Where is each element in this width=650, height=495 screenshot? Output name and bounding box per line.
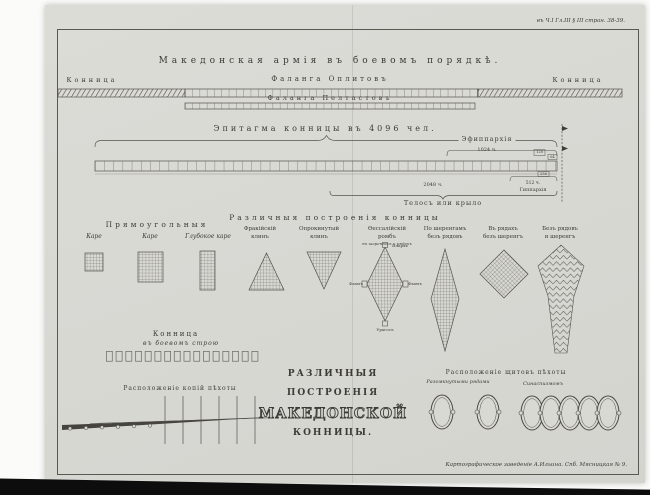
kare-small-grid [85,253,103,271]
kare-large-grid [138,252,163,282]
shield-open-1 [429,395,455,429]
count-256: 256 [540,173,547,177]
thessalian-rhombus [367,247,403,321]
main-title-line1: РАЗЛИЧНЫЯ [288,370,379,379]
hoplite-phalanx-label: Фаланга Оплитовъ [271,76,388,83]
ranks-only-label-1: По шеренгамъ [424,227,467,233]
spears-title: Расположеніе копій пѣхоты [123,386,236,392]
tall-rhombus-ranks-only [431,249,459,351]
telos-count: 2048 ч. [423,183,442,188]
kare2-label: Каре [142,234,158,240]
cavalry-right-label: Конница [553,77,604,84]
count-64: 64 [550,156,554,160]
publisher-imprint: Картографическое заведеніе А.Ильина. Спб… [446,463,628,469]
main-title-line4: КОННИЦЫ. [293,429,373,438]
shields-open-label: Разомкнутыми рядами [426,380,489,385]
battle-line-title-1: Конница [153,331,199,338]
flag-icon [562,146,568,151]
ranks-only-label-2: безъ рядовъ [427,235,462,241]
deep-kare-label: Глубокое каре [185,234,231,240]
battle-line-title-2: въ боевомъ строю [143,341,219,347]
various-formations-header: Различныя построенія конницы [229,214,441,222]
peltast-phalanx-label: Фаланга Пелтастовъ [267,95,392,102]
ephipparchia-count: 1024 ч. [477,148,496,153]
no-order-label-2: и шеренгъ [545,235,576,241]
shields-diagram [429,395,621,430]
loose-rhombus-no-ranks [538,245,584,353]
right-flank-label: Флангъ [408,283,422,287]
ephipparchia-label: Эфиппархія [459,136,516,143]
hipparchia-count: 512 ч. [526,182,540,187]
flag-icon [562,126,568,131]
thracian-wedge-label-1: Фракійскій [244,227,276,233]
shield-open-2 [475,395,501,429]
plate-title: Македонская армія въ боевомъ порядкѣ. [159,57,502,66]
ilarch-label: Илархъ [392,244,408,248]
inverted-wedge-label-2: клинъ [310,235,328,241]
spears-diagram [62,396,272,444]
uragos-marker [383,321,388,326]
squadron-row [106,351,259,362]
count-128: 128 [536,151,543,155]
epitagma-title: Эпитагма конницы въ 4096 чел. [213,125,436,133]
main-title-line3: МАКЕДОНСКОЙ [259,407,407,421]
shields-closed-group [519,396,621,430]
thessalian-rhombus-label-1: Ѳессалійскій [368,227,406,233]
telos-label: Телосъ или крыло [404,200,482,207]
deep-kare-grid [200,251,215,290]
rectangular-header: Прямоугольныя [106,221,209,229]
shields-closed-label: Синаспизмомъ [523,382,563,387]
uragos-label: Урагосъ [376,328,393,332]
rotated-square-files-only [480,250,528,298]
hipparchia-label: Гиппархія [519,188,546,193]
main-title-line2: ПОСТРОЕНІЯ [287,389,379,398]
no-order-label-1: Безъ рядовъ [542,227,578,233]
inverted-wedge [307,252,341,289]
files-only-label-2: безъ шеренгъ [483,235,523,241]
thracian-wedge [249,253,284,290]
kare1-label: Каре [86,234,102,240]
cavalry-left-label: Конница [67,77,118,84]
inverted-wedge-label-1: Опрокинутый [299,227,339,233]
shields-title: Расположеніе щитовъ пѣхоты [446,370,567,376]
thracian-wedge-label-2: клинъ [251,235,269,241]
left-flank-label: Флангъ [349,283,363,287]
corner-reference: въ Ч.I Гл.III § III стран. 38-39. [537,19,625,25]
files-only-label-1: Въ рядахъ [488,227,518,233]
